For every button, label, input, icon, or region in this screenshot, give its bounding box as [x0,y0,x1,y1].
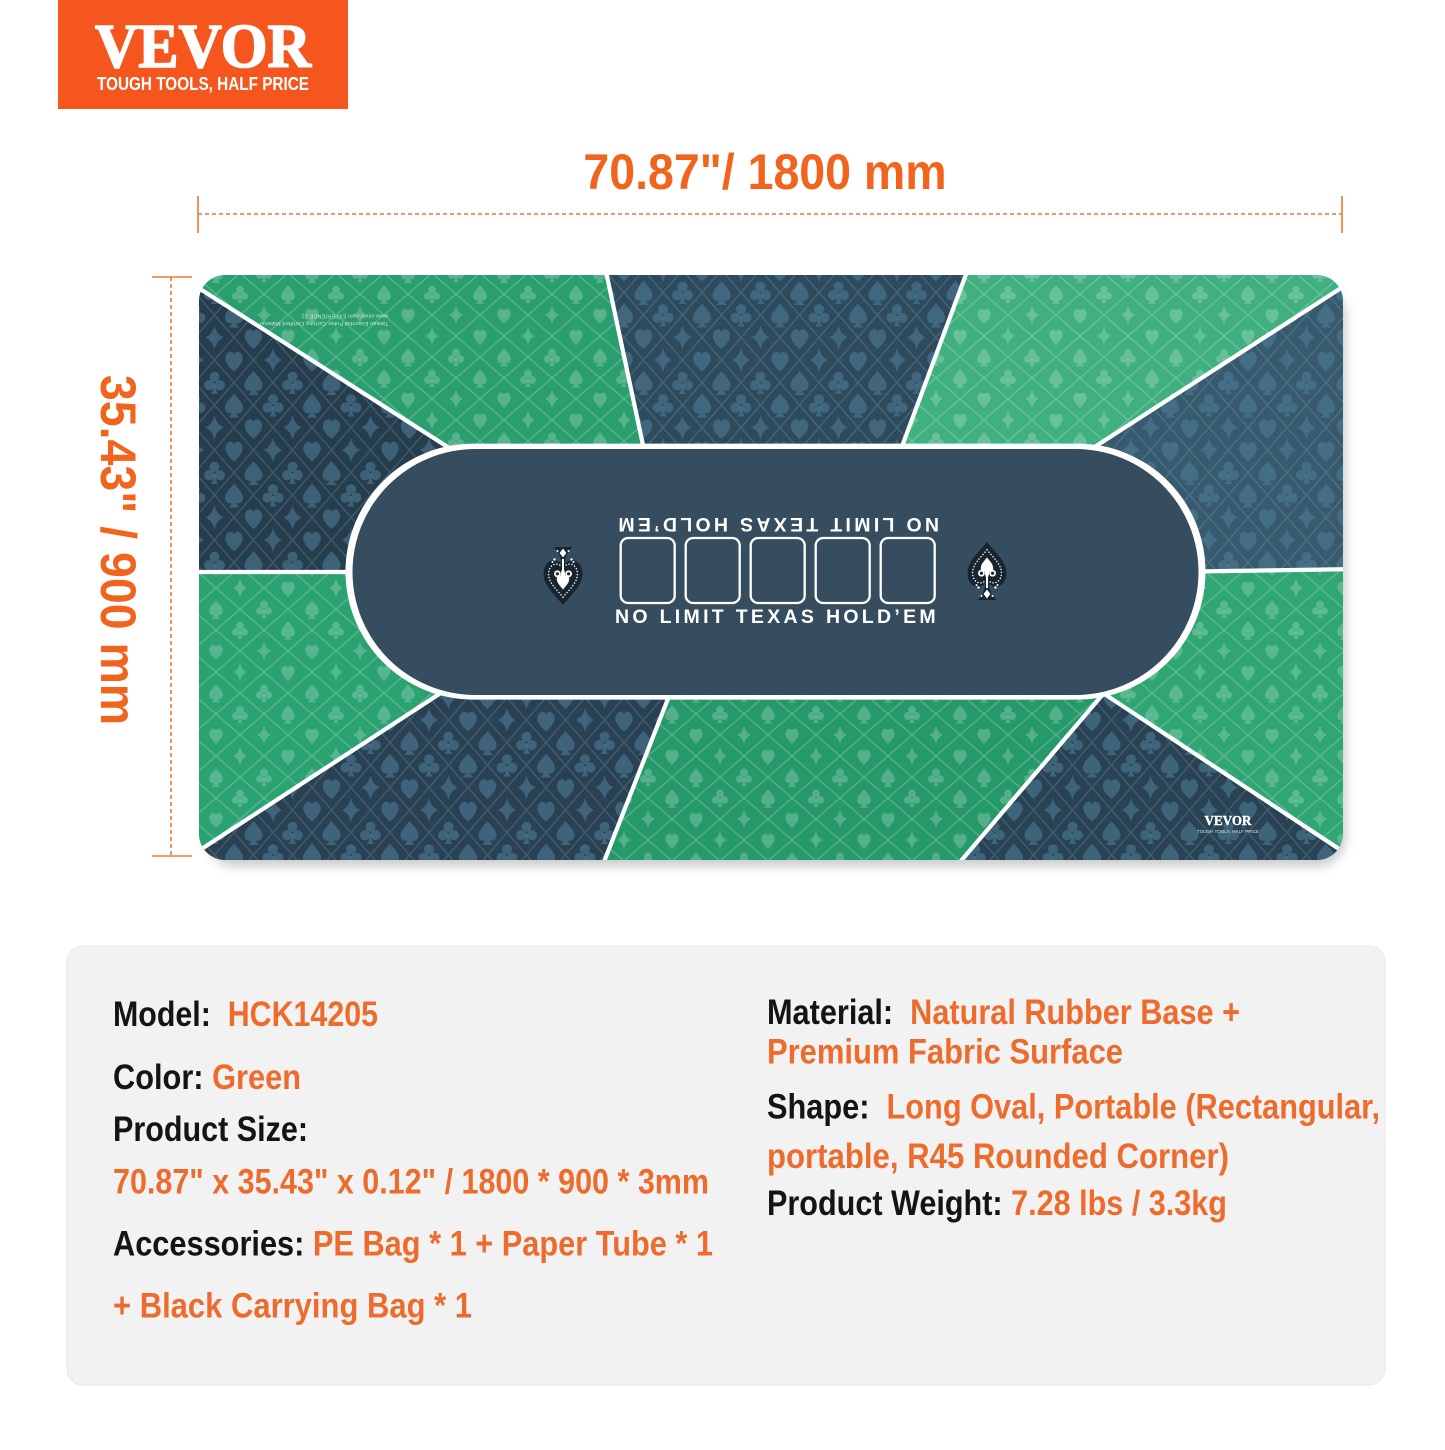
svg-text:70.87"/ 1800 mm: 70.87"/ 1800 mm [583,144,946,200]
svg-text:TOUGH TOOLS, HALF PRICE: TOUGH TOOLS, HALF PRICE [1197,829,1259,835]
svg-text:70.87" x 35.43" x 0.12" / 1800: 70.87" x 35.43" x 0.12" / 1800 * 900 * 3… [113,1163,709,1202]
svg-text:Taiwan Essential Poker Cerlong: Taiwan Essential Poker Cerlong Certified… [260,320,388,326]
svg-text:Premium Fabric Surface: Premium Fabric Surface [767,1033,1123,1072]
svg-text:TOUGH TOOLS, HALF PRICE: TOUGH TOOLS, HALF PRICE [97,73,309,94]
svg-text:+ Black Carrying Bag * 1: + Black Carrying Bag * 1 [113,1286,472,1325]
svg-text:www.vevor.com EXPERIENCE 01: www.vevor.com EXPERIENCE 01 [301,313,389,319]
svg-text:Shape: Long Oval, Portable (R: Shape: Long Oval, Portable (Rectangular, [767,1087,1380,1126]
svg-text:Material: Natural Rubber Base: Material: Natural Rubber Base + [767,993,1240,1032]
svg-text:35.43" / 900 mm: 35.43" / 900 mm [90,375,146,725]
svg-text:NO LIMIT TEXAS HOLD’EM: NO LIMIT TEXAS HOLD’EM [615,513,939,535]
svg-text:Color: Green: Color: Green [113,1058,301,1097]
svg-text:Model: HCK14205: Model: HCK14205 [113,995,378,1034]
svg-text:portable, R45 Rounded Corner): portable, R45 Rounded Corner) [767,1137,1229,1176]
svg-text:Accessories: PE Bag * 1 + Pape: Accessories: PE Bag * 1 + Paper Tube * 1 [113,1225,713,1264]
svg-text:NO LIMIT TEXAS HOLD’EM: NO LIMIT TEXAS HOLD’EM [615,606,939,628]
svg-text:VEVOR: VEVOR [95,13,312,81]
svg-text:Product Size:: Product Size: [113,1110,308,1149]
svg-text:Product Weight: 7.28 lbs / 3.3: Product Weight: 7.28 lbs / 3.3kg [767,1184,1227,1223]
svg-text:VEVOR: VEVOR [1205,814,1253,829]
